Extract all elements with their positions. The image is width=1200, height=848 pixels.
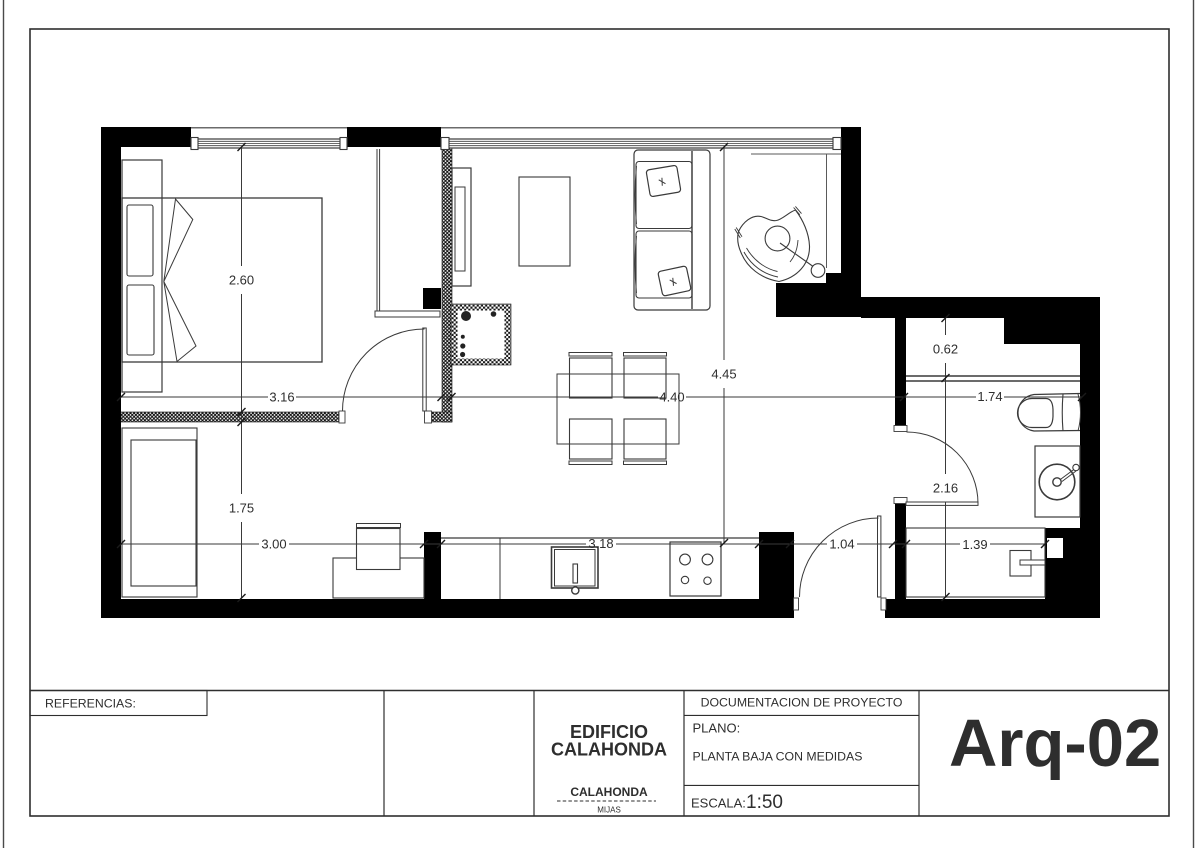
svg-text:1.74: 1.74 (977, 389, 1002, 404)
svg-text:1:50: 1:50 (746, 792, 783, 813)
svg-text:3.00: 3.00 (261, 537, 286, 552)
svg-text:DOCUMENTACION DE PROYECTO: DOCUMENTACION DE PROYECTO (701, 696, 903, 710)
svg-text:1.04: 1.04 (829, 537, 854, 552)
svg-text:3.18: 3.18 (588, 536, 613, 551)
svg-text:0.62: 0.62 (933, 342, 958, 357)
svg-text:ESCALA:: ESCALA: (691, 796, 746, 811)
svg-text:PLANTA BAJA CON MEDIDAS: PLANTA BAJA CON MEDIDAS (693, 750, 863, 764)
svg-text:CALAHONDA: CALAHONDA (551, 740, 667, 760)
svg-text:4.40: 4.40 (659, 390, 684, 405)
svg-text:2.16: 2.16 (933, 481, 958, 496)
svg-text:CALAHONDA: CALAHONDA (570, 785, 648, 799)
svg-text:MIJAS: MIJAS (597, 806, 621, 815)
svg-text:Arq-02: Arq-02 (949, 706, 1161, 781)
svg-text:REFERENCIAS:: REFERENCIAS: (45, 697, 136, 711)
svg-text:PLANO:: PLANO: (693, 721, 741, 736)
svg-text:1.39: 1.39 (962, 537, 987, 552)
svg-text:1.75: 1.75 (229, 501, 254, 516)
svg-text:3.16: 3.16 (269, 390, 294, 405)
svg-text:2.60: 2.60 (229, 273, 254, 288)
svg-text:4.45: 4.45 (711, 367, 736, 382)
